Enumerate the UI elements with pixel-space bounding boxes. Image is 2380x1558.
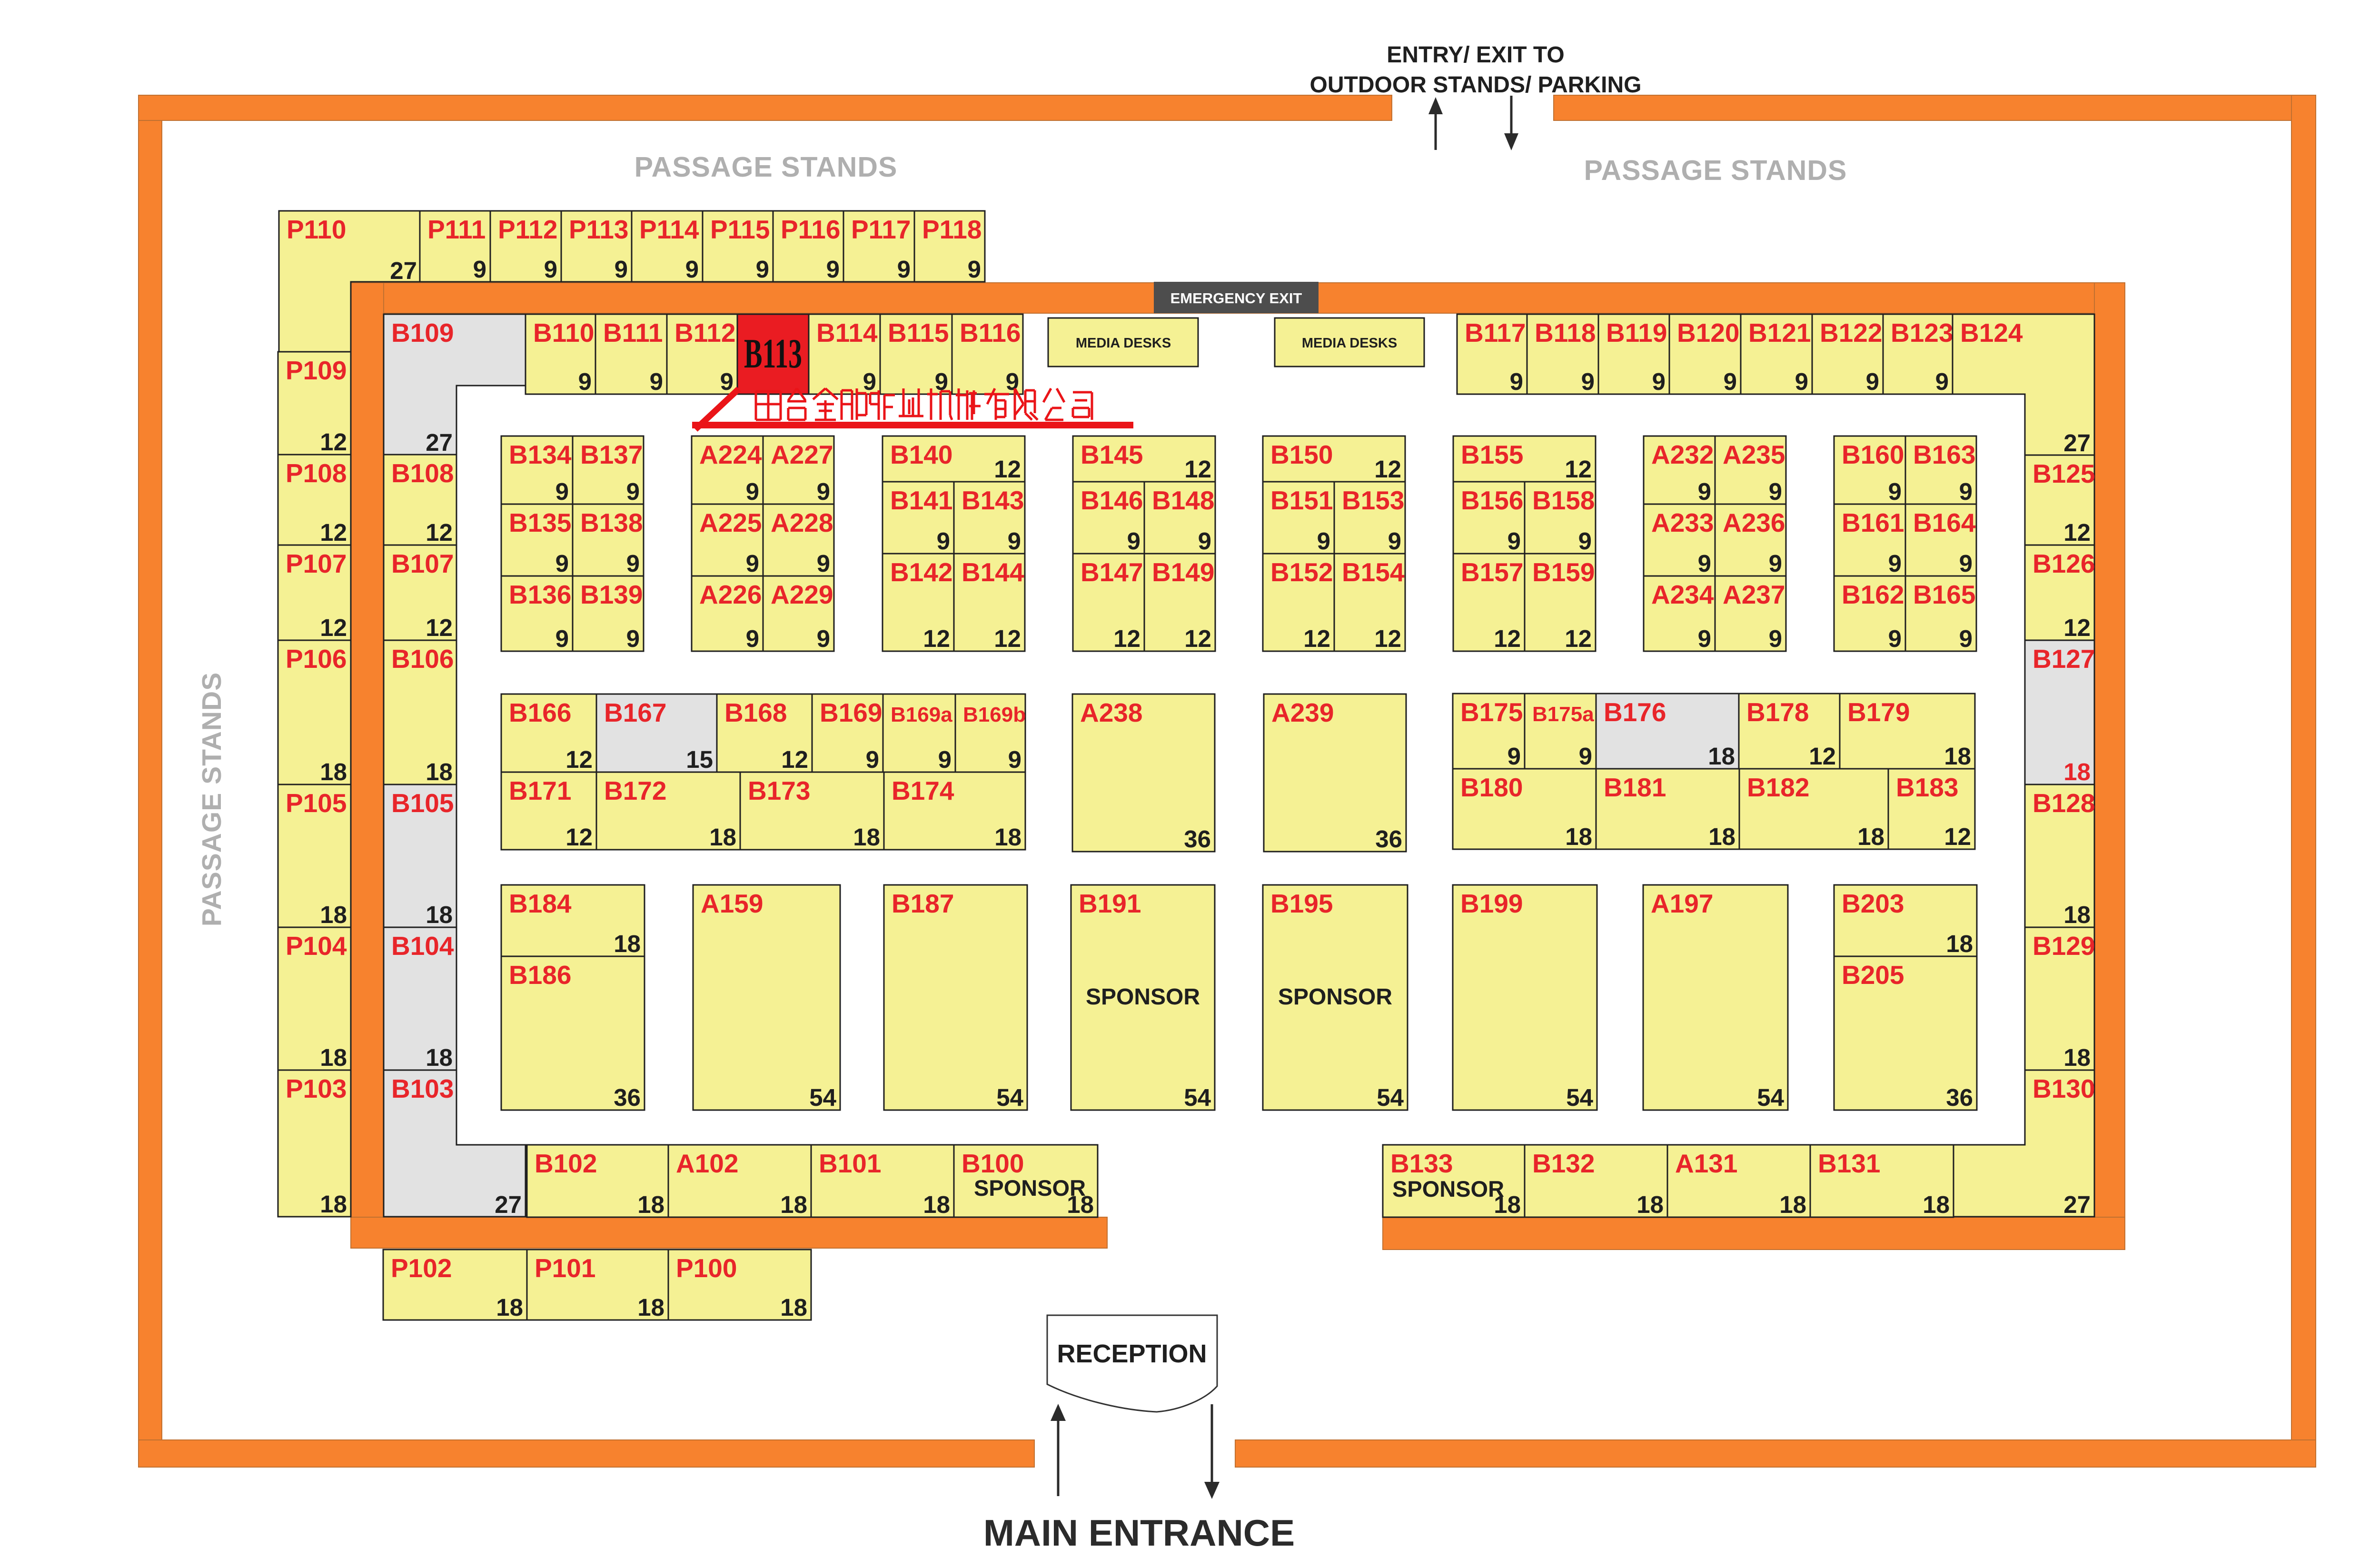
svg-text:9: 9: [1698, 550, 1711, 577]
svg-text:B168: B168: [724, 698, 787, 727]
svg-text:B154: B154: [1342, 557, 1405, 587]
svg-text:9: 9: [626, 478, 640, 505]
svg-text:B128: B128: [2033, 788, 2095, 818]
svg-text:B119: B119: [1606, 318, 1667, 347]
svg-text:9: 9: [746, 625, 759, 652]
svg-text:9: 9: [626, 550, 640, 577]
svg-text:9: 9: [1888, 550, 1902, 577]
svg-text:18: 18: [320, 901, 347, 928]
svg-text:18: 18: [1708, 823, 1735, 850]
svg-text:P102: P102: [391, 1253, 452, 1283]
svg-text:B172: B172: [604, 776, 666, 805]
svg-text:B174: B174: [892, 776, 954, 805]
svg-text:P117: P117: [851, 215, 911, 244]
svg-text:B111: B111: [603, 318, 663, 347]
svg-text:B105: B105: [391, 788, 454, 818]
svg-text:B180: B180: [1460, 773, 1523, 802]
svg-text:27: 27: [426, 429, 453, 456]
svg-text:B102: B102: [535, 1149, 597, 1178]
svg-text:B161: B161: [1842, 508, 1904, 537]
svg-text:18: 18: [1946, 930, 1973, 957]
svg-text:9: 9: [1652, 368, 1666, 395]
svg-text:9: 9: [746, 550, 759, 577]
svg-text:B178: B178: [1746, 697, 1809, 727]
svg-text:B157: B157: [1461, 557, 1523, 587]
svg-text:B113: B113: [744, 331, 802, 377]
svg-text:9: 9: [1510, 368, 1523, 395]
svg-text:P118: P118: [922, 215, 982, 244]
svg-text:9: 9: [685, 256, 699, 283]
svg-text:B133: B133: [1390, 1149, 1453, 1178]
svg-text:A233: A233: [1651, 508, 1714, 537]
svg-text:B136: B136: [509, 580, 571, 609]
svg-text:B104: B104: [391, 931, 454, 961]
svg-text:P114: P114: [639, 215, 699, 244]
svg-text:12: 12: [426, 614, 453, 641]
svg-text:9: 9: [720, 368, 734, 395]
svg-text:12: 12: [1184, 456, 1211, 483]
svg-text:12: 12: [1374, 625, 1401, 652]
svg-text:B175: B175: [1460, 697, 1523, 727]
svg-text:MAIN ENTRANCE: MAIN ENTRANCE: [983, 1512, 1295, 1554]
svg-text:36: 36: [1375, 825, 1402, 853]
svg-text:A197: A197: [1651, 889, 1713, 918]
svg-text:A227: A227: [771, 440, 833, 469]
svg-text:P107: P107: [286, 549, 347, 578]
svg-text:12: 12: [1374, 456, 1401, 483]
svg-text:P101: P101: [535, 1253, 595, 1283]
svg-text:A102: A102: [676, 1149, 738, 1178]
svg-text:9: 9: [817, 625, 830, 652]
svg-text:18: 18: [614, 930, 641, 957]
svg-text:18: 18: [637, 1191, 664, 1218]
svg-text:P115: P115: [710, 215, 770, 244]
svg-text:B150: B150: [1270, 440, 1333, 469]
svg-text:9: 9: [817, 478, 830, 505]
svg-text:9: 9: [555, 550, 569, 577]
svg-text:9: 9: [1866, 368, 1879, 395]
svg-text:PASSAGE STANDS: PASSAGE STANDS: [635, 151, 898, 183]
svg-text:18: 18: [2063, 758, 2091, 785]
svg-text:B175a: B175a: [1532, 703, 1594, 726]
svg-text:B160: B160: [1842, 440, 1904, 469]
svg-text:9: 9: [544, 256, 557, 283]
svg-text:MEDIA DESKS: MEDIA DESKS: [1076, 336, 1171, 351]
svg-text:B203: B203: [1842, 889, 1904, 918]
svg-text:9: 9: [826, 256, 840, 283]
svg-text:B124: B124: [1960, 318, 2023, 347]
svg-text:B162: B162: [1842, 580, 1904, 609]
svg-text:18: 18: [1923, 1191, 1950, 1218]
svg-text:RECEPTION: RECEPTION: [1057, 1340, 1207, 1368]
svg-text:SPONSOR: SPONSOR: [1278, 984, 1392, 1010]
svg-text:B169b: B169b: [963, 703, 1026, 726]
svg-text:B176: B176: [1604, 697, 1666, 727]
svg-text:P106: P106: [286, 644, 347, 674]
svg-text:OUTDOOR STANDS/ PARKING: OUTDOOR STANDS/ PARKING: [1310, 72, 1642, 98]
svg-text:18: 18: [853, 824, 880, 851]
svg-text:9: 9: [938, 746, 952, 773]
svg-text:A229: A229: [771, 580, 833, 609]
svg-text:B143: B143: [962, 486, 1024, 515]
svg-text:B195: B195: [1270, 889, 1333, 918]
svg-text:36: 36: [1184, 825, 1211, 853]
svg-text:B144: B144: [962, 557, 1024, 587]
svg-text:9: 9: [1698, 625, 1711, 652]
svg-text:EMERGENCY EXIT: EMERGENCY EXIT: [1170, 290, 1302, 307]
svg-text:12: 12: [781, 746, 808, 773]
svg-text:B184: B184: [509, 889, 572, 918]
svg-text:9: 9: [1388, 527, 1401, 555]
svg-text:A239: A239: [1271, 698, 1334, 727]
svg-text:15: 15: [686, 746, 713, 773]
svg-text:54: 54: [1377, 1084, 1404, 1111]
svg-text:12: 12: [565, 824, 593, 851]
svg-text:B109: B109: [391, 318, 454, 347]
svg-text:B125: B125: [2033, 459, 2095, 488]
svg-text:A131: A131: [1675, 1149, 1737, 1178]
svg-text:A224: A224: [699, 440, 762, 469]
svg-text:B103: B103: [391, 1074, 454, 1103]
svg-text:54: 54: [1184, 1084, 1211, 1111]
svg-text:9: 9: [1769, 550, 1782, 577]
svg-text:B134: B134: [509, 440, 572, 469]
svg-text:12: 12: [1113, 625, 1140, 652]
svg-text:B147: B147: [1081, 557, 1143, 587]
svg-text:18: 18: [426, 758, 453, 785]
svg-text:B107: B107: [391, 549, 454, 578]
svg-text:9: 9: [1724, 368, 1737, 395]
svg-text:P100: P100: [676, 1253, 737, 1283]
svg-text:9: 9: [756, 256, 769, 283]
svg-text:B131: B131: [1818, 1149, 1880, 1178]
svg-text:B108: B108: [391, 458, 454, 488]
svg-text:12: 12: [1944, 823, 1971, 850]
svg-text:12: 12: [2063, 614, 2091, 641]
svg-text:18: 18: [1779, 1191, 1806, 1218]
svg-text:18: 18: [780, 1294, 807, 1321]
svg-text:B118: B118: [1535, 318, 1596, 347]
svg-text:18: 18: [320, 758, 347, 785]
svg-text:B116: B116: [960, 318, 1021, 347]
svg-text:18: 18: [496, 1294, 523, 1321]
svg-text:9: 9: [1959, 478, 1973, 505]
svg-text:B145: B145: [1081, 440, 1143, 469]
svg-text:27: 27: [2063, 1191, 2091, 1218]
svg-text:B137: B137: [580, 440, 643, 469]
svg-text:B112: B112: [674, 318, 735, 347]
svg-text:9: 9: [1578, 527, 1592, 555]
svg-text:9: 9: [1008, 527, 1021, 555]
svg-text:9: 9: [1959, 625, 1973, 652]
svg-text:9: 9: [746, 478, 759, 505]
svg-text:9: 9: [1317, 527, 1330, 555]
svg-text:9: 9: [578, 368, 592, 395]
svg-text:P103: P103: [286, 1074, 347, 1103]
svg-text:54: 54: [809, 1084, 836, 1111]
svg-text:12: 12: [1565, 625, 1592, 652]
svg-text:18: 18: [426, 901, 453, 928]
svg-text:B100: B100: [962, 1149, 1024, 1178]
svg-text:18: 18: [923, 1191, 950, 1218]
svg-text:18: 18: [426, 1044, 453, 1071]
svg-text:9: 9: [1008, 746, 1021, 773]
svg-text:B153: B153: [1342, 486, 1404, 515]
svg-text:9: 9: [1769, 625, 1782, 652]
svg-text:B142: B142: [890, 557, 952, 587]
svg-text:12: 12: [2063, 519, 2091, 546]
svg-text:B101: B101: [819, 1149, 881, 1178]
svg-text:A159: A159: [701, 889, 763, 918]
svg-text:B141: B141: [890, 486, 952, 515]
svg-text:B130: B130: [2033, 1074, 2095, 1103]
svg-text:18: 18: [1636, 1191, 1664, 1218]
svg-text:B122: B122: [1820, 318, 1882, 347]
svg-text:P109: P109: [286, 356, 347, 385]
svg-text:B163: B163: [1913, 440, 1975, 469]
svg-text:B146: B146: [1081, 486, 1143, 515]
svg-text:B159: B159: [1532, 557, 1595, 587]
svg-text:P105: P105: [286, 788, 347, 818]
svg-text:B171: B171: [509, 776, 571, 805]
svg-text:9: 9: [1507, 527, 1521, 555]
svg-text:9: 9: [863, 368, 876, 395]
svg-text:18: 18: [994, 824, 1021, 851]
svg-text:12: 12: [320, 428, 347, 456]
svg-text:A226: A226: [699, 580, 762, 609]
svg-text:B191: B191: [1079, 889, 1141, 918]
svg-text:9: 9: [1888, 625, 1902, 652]
svg-text:B179: B179: [1847, 697, 1910, 727]
svg-text:9: 9: [897, 256, 911, 283]
svg-text:12: 12: [1184, 625, 1211, 652]
svg-text:9: 9: [555, 625, 569, 652]
svg-text:18: 18: [320, 1044, 347, 1071]
svg-text:9: 9: [473, 256, 486, 283]
svg-text:P110: P110: [287, 215, 346, 244]
svg-text:A234: A234: [1651, 580, 1714, 609]
svg-text:9: 9: [1698, 478, 1711, 505]
svg-text:A228: A228: [771, 508, 833, 537]
svg-text:18: 18: [2063, 1044, 2091, 1071]
svg-text:54: 54: [1566, 1084, 1593, 1111]
svg-text:P108: P108: [286, 458, 347, 488]
svg-text:ENTRY/ EXIT TO: ENTRY/ EXIT TO: [1387, 42, 1564, 68]
svg-text:B183: B183: [1896, 773, 1958, 802]
svg-text:B199: B199: [1460, 889, 1523, 918]
svg-text:B135: B135: [509, 508, 571, 537]
svg-text:P116: P116: [781, 215, 840, 244]
svg-text:9: 9: [555, 478, 569, 505]
svg-text:18: 18: [637, 1294, 664, 1321]
svg-text:P104: P104: [286, 931, 347, 961]
svg-text:B121: B121: [1748, 318, 1811, 347]
svg-text:18: 18: [709, 824, 736, 851]
svg-text:B149: B149: [1152, 557, 1214, 587]
svg-text:A235: A235: [1723, 440, 1785, 469]
svg-text:12: 12: [1565, 456, 1592, 483]
svg-text:B165: B165: [1913, 580, 1975, 609]
svg-text:9: 9: [1581, 368, 1595, 395]
svg-text:12: 12: [1303, 625, 1330, 652]
svg-text:B164: B164: [1913, 508, 1976, 537]
svg-text:B205: B205: [1842, 960, 1904, 990]
svg-text:18: 18: [780, 1191, 807, 1218]
svg-text:B126: B126: [2033, 549, 2095, 578]
svg-text:B132: B132: [1532, 1149, 1595, 1178]
svg-text:B120: B120: [1677, 318, 1739, 347]
svg-text:54: 54: [1757, 1084, 1784, 1111]
svg-text:B139: B139: [580, 580, 643, 609]
svg-text:PASSAGE STANDS: PASSAGE STANDS: [197, 672, 227, 926]
svg-text:27: 27: [390, 257, 417, 284]
svg-text:12: 12: [994, 456, 1021, 483]
svg-text:B129: B129: [2033, 931, 2095, 961]
svg-text:B187: B187: [892, 889, 954, 918]
svg-text:SPONSOR: SPONSOR: [1392, 1176, 1504, 1201]
svg-text:B140: B140: [890, 440, 952, 469]
svg-text:MEDIA DESKS: MEDIA DESKS: [1302, 336, 1397, 351]
svg-text:12: 12: [1494, 625, 1521, 652]
svg-text:9: 9: [1769, 478, 1782, 505]
svg-text:27: 27: [495, 1191, 522, 1218]
svg-text:9: 9: [1127, 527, 1140, 555]
svg-text:SPONSOR: SPONSOR: [974, 1175, 1086, 1201]
svg-text:B169: B169: [820, 698, 882, 727]
svg-text:PASSAGE STANDS: PASSAGE STANDS: [1584, 155, 1847, 186]
svg-text:A236: A236: [1723, 508, 1785, 537]
svg-text:A237: A237: [1723, 580, 1785, 609]
svg-text:B182: B182: [1747, 773, 1809, 802]
svg-text:B169a: B169a: [891, 703, 952, 726]
svg-text:12: 12: [320, 519, 347, 546]
svg-text:12: 12: [565, 746, 593, 773]
svg-text:12: 12: [426, 519, 453, 546]
svg-text:SPONSOR: SPONSOR: [1086, 984, 1200, 1010]
svg-text:B117: B117: [1465, 318, 1526, 347]
svg-text:9: 9: [1507, 743, 1521, 770]
svg-text:12: 12: [1809, 743, 1836, 770]
svg-text:B115: B115: [888, 318, 949, 347]
svg-text:18: 18: [1944, 743, 1971, 770]
svg-text:36: 36: [614, 1084, 641, 1111]
svg-text:P113: P113: [569, 215, 628, 244]
svg-text:9: 9: [968, 256, 981, 283]
svg-text:18: 18: [1857, 823, 1884, 850]
svg-text:12: 12: [320, 614, 347, 641]
svg-text:18: 18: [320, 1191, 347, 1218]
svg-text:12: 12: [923, 625, 950, 652]
svg-text:54: 54: [996, 1084, 1023, 1111]
svg-text:B186: B186: [509, 960, 571, 990]
svg-text:9: 9: [1888, 478, 1902, 505]
svg-text:B123: B123: [1891, 318, 1953, 347]
svg-text:36: 36: [1946, 1084, 1973, 1111]
svg-text:B152: B152: [1270, 557, 1333, 587]
svg-text:18: 18: [1708, 743, 1735, 770]
svg-text:A225: A225: [699, 508, 762, 537]
svg-text:18: 18: [1565, 823, 1592, 850]
svg-text:B166: B166: [509, 698, 571, 727]
svg-text:B151: B151: [1270, 486, 1333, 515]
svg-text:9: 9: [1795, 368, 1808, 395]
svg-text:9: 9: [1935, 368, 1949, 395]
svg-text:B181: B181: [1604, 773, 1666, 802]
svg-text:9: 9: [626, 625, 640, 652]
svg-text:9: 9: [817, 550, 830, 577]
svg-text:A232: A232: [1651, 440, 1714, 469]
svg-text:9: 9: [1579, 743, 1592, 770]
svg-text:P112: P112: [498, 215, 557, 244]
svg-text:9: 9: [937, 527, 950, 555]
svg-text:A238: A238: [1080, 698, 1142, 727]
svg-text:B173: B173: [748, 776, 810, 805]
svg-text:B114: B114: [816, 318, 878, 347]
svg-text:B127: B127: [2033, 644, 2095, 674]
svg-text:27: 27: [2063, 429, 2091, 456]
svg-text:9: 9: [1959, 550, 1973, 577]
svg-text:B155: B155: [1461, 440, 1523, 469]
svg-text:B156: B156: [1461, 486, 1523, 515]
svg-text:P111: P111: [427, 215, 486, 244]
svg-text:9: 9: [650, 368, 663, 395]
svg-text:B158: B158: [1532, 486, 1595, 515]
svg-text:B106: B106: [391, 644, 454, 674]
svg-text:B148: B148: [1152, 486, 1214, 515]
svg-text:9: 9: [615, 256, 628, 283]
svg-text:12: 12: [994, 625, 1021, 652]
svg-text:B138: B138: [580, 508, 643, 537]
svg-text:9: 9: [1198, 527, 1211, 555]
svg-text:9: 9: [866, 746, 879, 773]
svg-text:B167: B167: [604, 698, 666, 727]
svg-text:18: 18: [2063, 901, 2091, 928]
svg-text:B110: B110: [533, 318, 594, 347]
